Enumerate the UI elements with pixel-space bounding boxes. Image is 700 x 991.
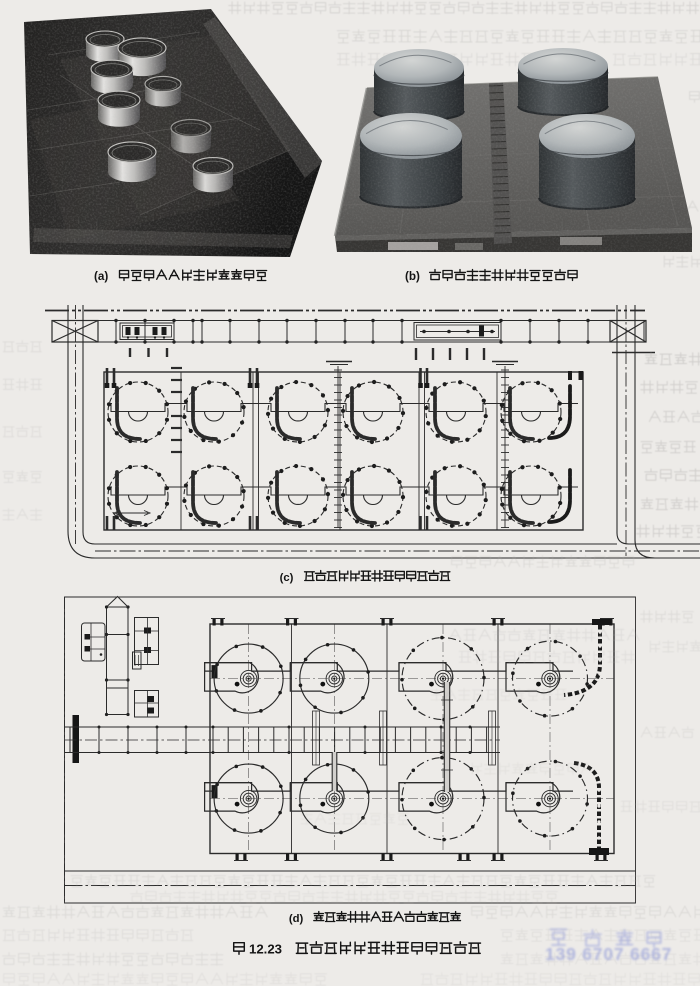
svg-text:(d): (d): [289, 913, 307, 925]
svg-text:(b): (b): [405, 270, 423, 283]
svg-text:139 6707 6667: 139 6707 6667: [545, 944, 672, 964]
svg-text:12.23: 12.23: [249, 942, 282, 957]
svg-text:(a): (a): [94, 270, 112, 283]
svg-text:(c): (c): [280, 572, 297, 584]
